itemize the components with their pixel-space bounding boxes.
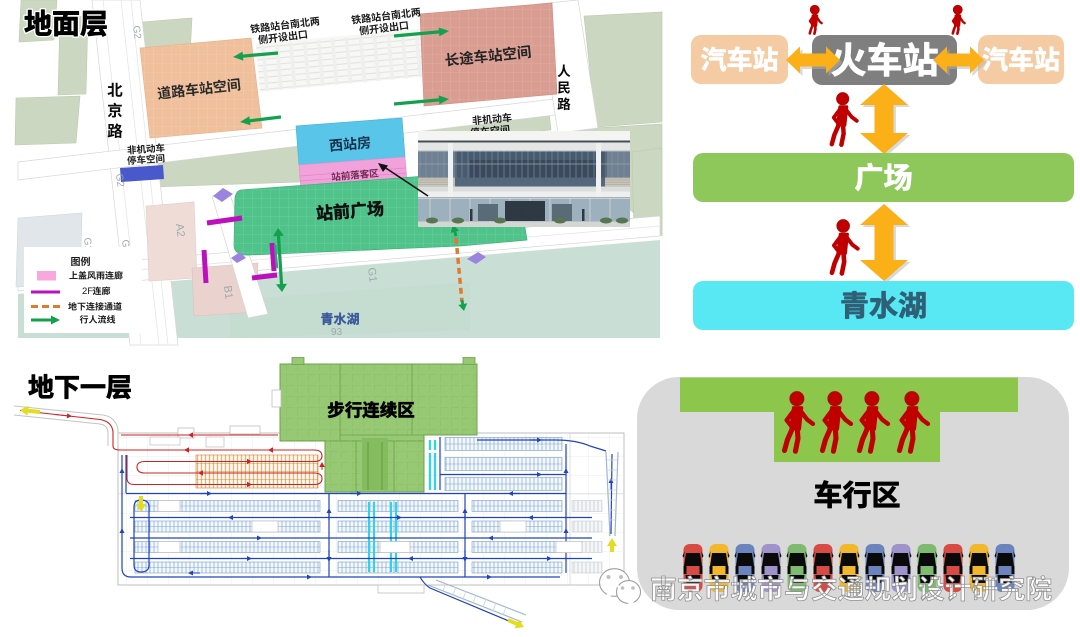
svg-text:G2: G2: [113, 173, 126, 188]
svg-text:2F: 2F: [82, 286, 93, 297]
svg-text:93: 93: [331, 327, 343, 338]
svg-text:G1: G1: [365, 267, 379, 283]
svg-text:A2: A2: [173, 223, 187, 238]
svg-text:G2: G2: [130, 25, 143, 40]
svg-text:B1: B1: [221, 285, 235, 300]
